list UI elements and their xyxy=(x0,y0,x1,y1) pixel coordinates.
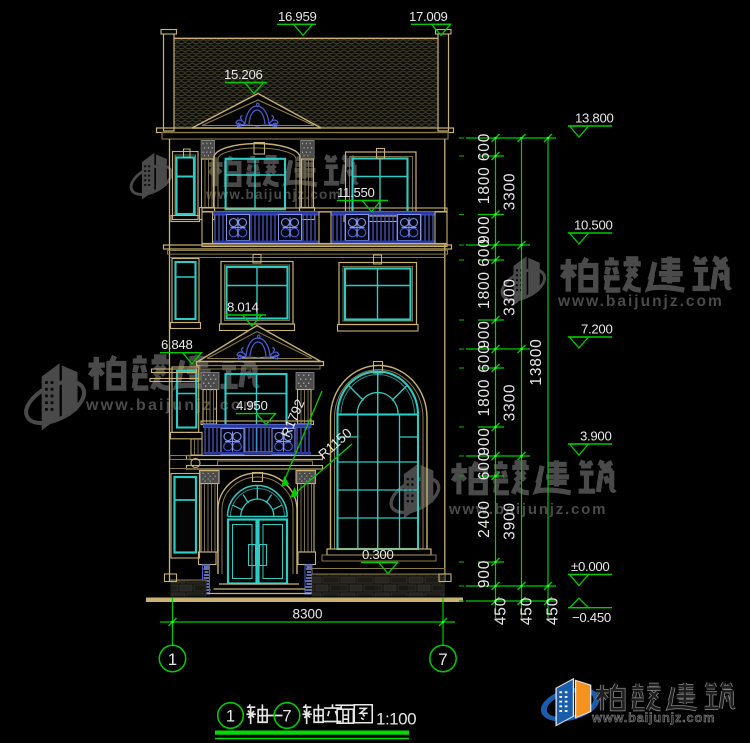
svg-text:1: 1 xyxy=(226,708,235,726)
svg-text:600: 600 xyxy=(476,344,493,372)
svg-text:±0.000: ±0.000 xyxy=(571,559,609,574)
svg-text:8.014: 8.014 xyxy=(227,300,259,315)
svg-text:0.300: 0.300 xyxy=(362,547,394,562)
svg-text:2400: 2400 xyxy=(476,500,493,538)
svg-text:450: 450 xyxy=(493,597,510,625)
svg-text:600: 600 xyxy=(476,133,493,161)
svg-text:1:100: 1:100 xyxy=(376,710,416,729)
svg-text:900: 900 xyxy=(476,427,493,455)
svg-text:600: 600 xyxy=(476,452,493,480)
svg-text:450: 450 xyxy=(519,597,536,625)
svg-text:www.baijunjz.com: www.baijunjz.com xyxy=(557,293,724,310)
svg-text:11.550: 11.550 xyxy=(337,185,375,200)
svg-text:1800: 1800 xyxy=(476,271,493,309)
svg-text:www.baijunjz.com: www.baijunjz.com xyxy=(591,710,715,725)
svg-text:600: 600 xyxy=(476,238,493,266)
svg-text:3300: 3300 xyxy=(502,278,519,316)
svg-text:7: 7 xyxy=(438,650,447,669)
svg-text:3.900: 3.900 xyxy=(580,429,612,444)
svg-text:1800: 1800 xyxy=(476,166,493,204)
svg-text:16.959: 16.959 xyxy=(278,9,317,24)
svg-text:www.baijunjz.com: www.baijunjz.com xyxy=(448,501,607,518)
svg-text:13.800: 13.800 xyxy=(575,111,614,126)
svg-text:7: 7 xyxy=(282,708,291,726)
svg-text:−0.450: −0.450 xyxy=(572,610,611,625)
svg-text:900: 900 xyxy=(476,560,493,588)
svg-text:450: 450 xyxy=(545,597,562,625)
svg-text:15.206: 15.206 xyxy=(224,67,263,82)
svg-text:13800: 13800 xyxy=(528,338,545,385)
svg-text:17.009: 17.009 xyxy=(409,9,448,24)
svg-text:7.200: 7.200 xyxy=(581,322,613,337)
svg-text:4.950: 4.950 xyxy=(236,398,268,413)
svg-text:8300: 8300 xyxy=(292,607,322,622)
svg-text:6.848: 6.848 xyxy=(161,337,193,352)
svg-text:3900: 3900 xyxy=(502,502,519,540)
svg-text:3300: 3300 xyxy=(502,384,519,422)
svg-text:10.500: 10.500 xyxy=(574,218,613,233)
svg-text:1800: 1800 xyxy=(476,379,493,417)
svg-text:1: 1 xyxy=(168,650,177,669)
svg-text:3300: 3300 xyxy=(502,173,519,211)
